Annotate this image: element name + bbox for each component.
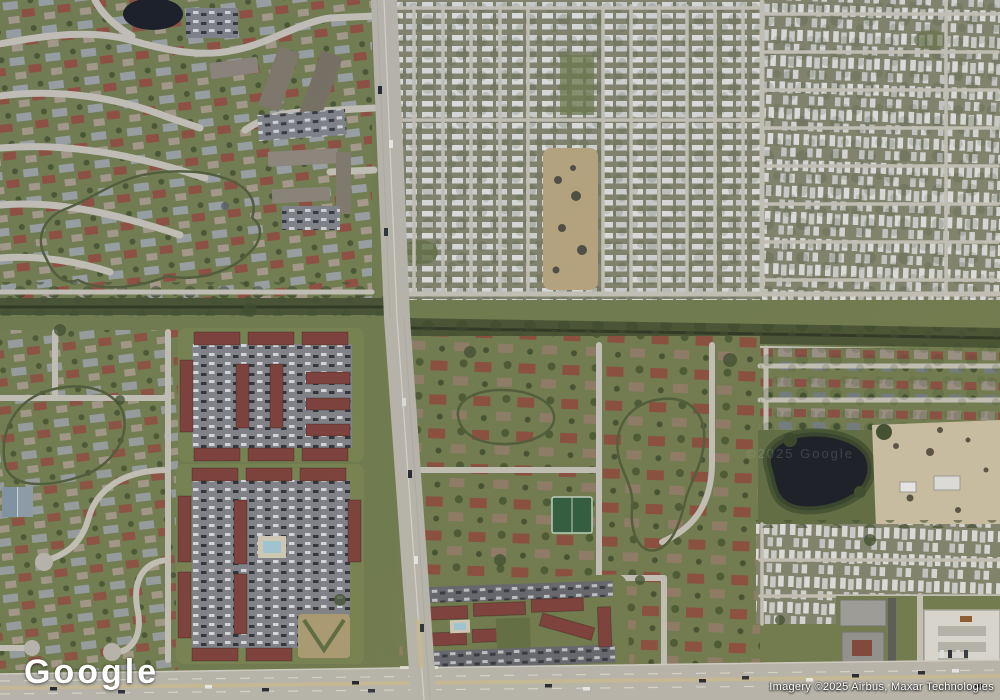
map-viewport[interactable]: ©2025 Google Google Imagery ©2025 Airbus… xyxy=(0,0,1000,700)
photo-tint-overlay xyxy=(0,0,1000,700)
satellite-imagery xyxy=(0,0,1000,700)
map-attribution: Imagery ©2025 Airbus, Maxar Technologies xyxy=(769,681,994,693)
google-logo[interactable]: Google xyxy=(24,653,159,692)
